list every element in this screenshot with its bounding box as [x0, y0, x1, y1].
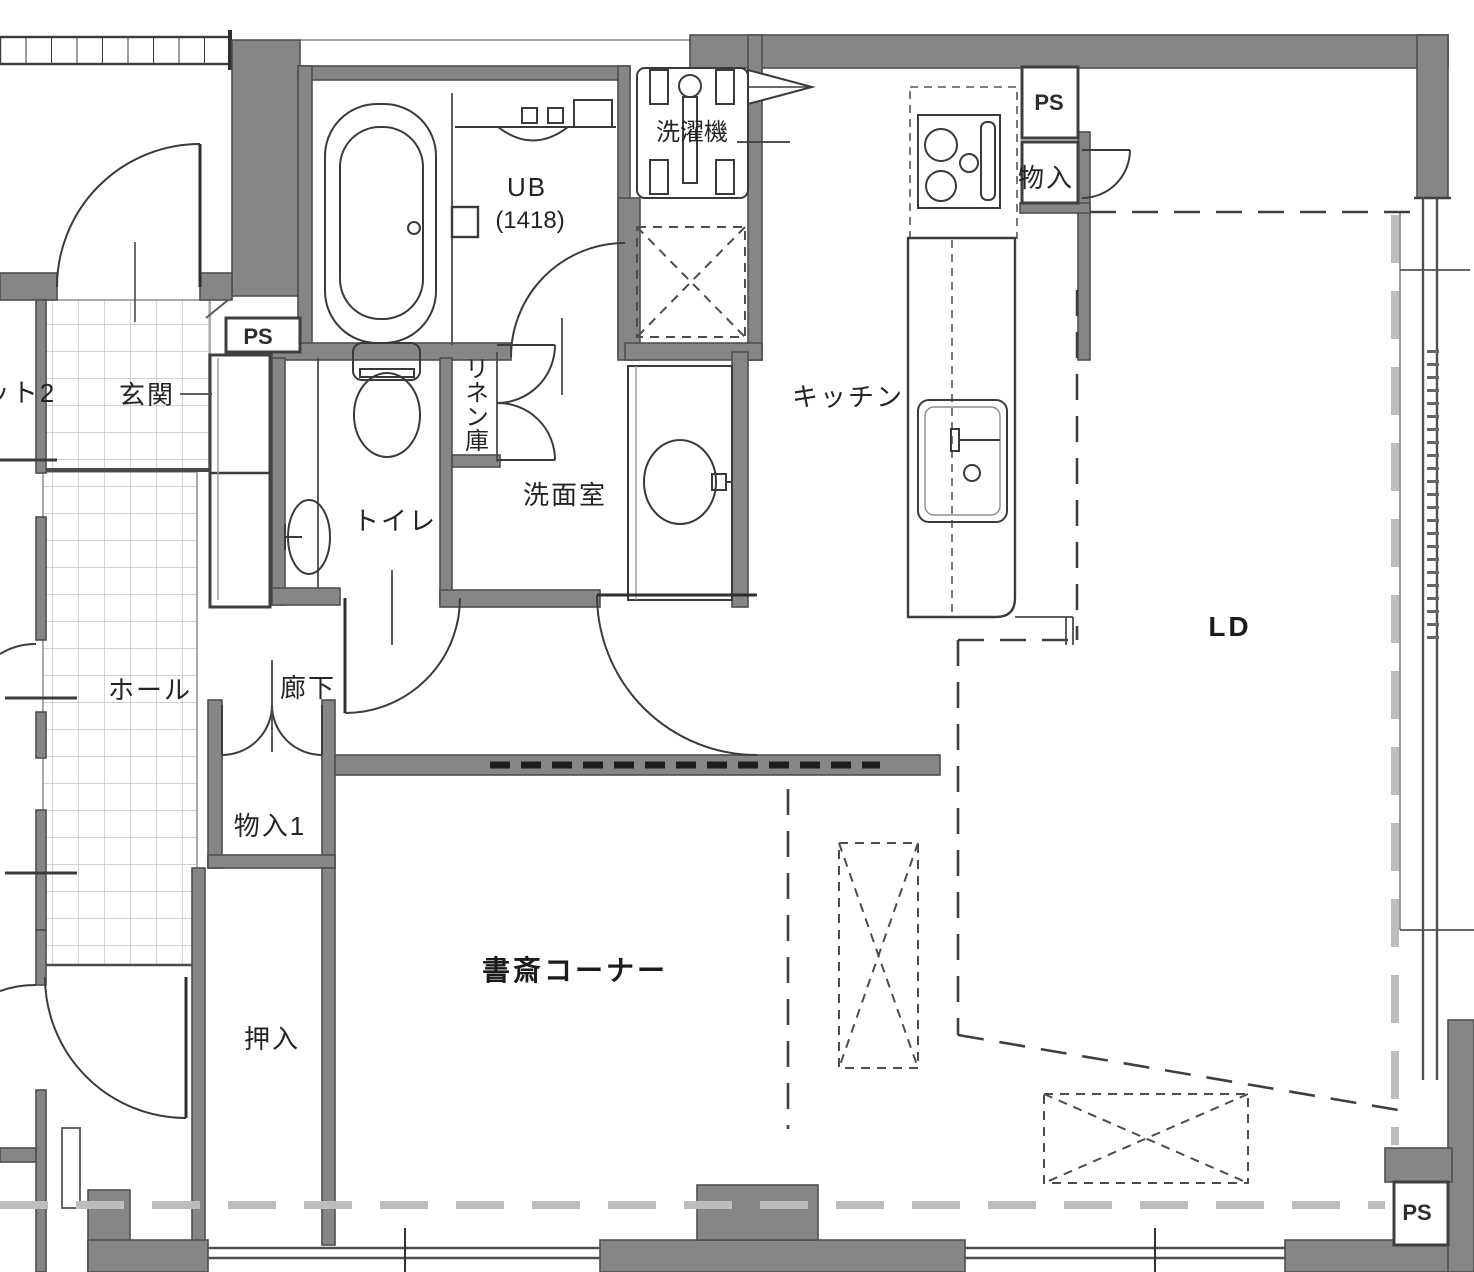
label-kitchen: キッチン: [792, 382, 904, 412]
ceiling-x-box-ld-tall: [839, 843, 918, 1068]
label-toilet: トイレ: [353, 506, 437, 536]
toilet-hand-basin: [285, 500, 330, 574]
bedroom-door-bottom-left: [45, 977, 186, 1118]
label-corridor: 廊下: [280, 673, 336, 703]
label-study: 書斎コーナー: [482, 954, 668, 986]
label-storage-kitchen: 物入: [1018, 163, 1074, 193]
washroom-door: [597, 595, 757, 755]
label-closet2-cut: ット2: [0, 378, 56, 408]
label-storage1: 物入1: [234, 811, 306, 841]
label-oshiire: 押入: [244, 1024, 300, 1054]
label-genkan: 玄関: [119, 380, 175, 410]
floor-plan-svg: 玄関 ット2 ホール 廊下 トイレ 洗面室 リネン庫 UB (1418) 洗濯機…: [0, 0, 1474, 1272]
floor-plan: 玄関 ット2 ホール 廊下 トイレ 洗面室 リネン庫 UB (1418) 洗濯機…: [0, 0, 1474, 1272]
kitchen-counter-sink: [908, 238, 1073, 645]
label-ps-left: PS: [243, 324, 272, 349]
ceiling-x-box-ld-wide: [1044, 1094, 1248, 1183]
label-laundry: 洗濯機: [656, 119, 728, 146]
exterior-gallery-strip: [0, 30, 690, 70]
ceiling-x-box-laundry: [637, 227, 745, 337]
linen-double-doors: [497, 345, 555, 462]
toilet-door: [345, 598, 460, 713]
entry-cabinet: [210, 355, 270, 607]
label-washroom: 洗面室: [523, 480, 607, 510]
label-living-dining: LD: [1208, 611, 1251, 642]
kitchen-stove: [910, 87, 1017, 238]
label-linen: リネン庫: [461, 356, 489, 452]
bathtub: [325, 104, 436, 343]
label-unit-bath: UB: [507, 172, 547, 202]
label-ps-kitchen: PS: [1034, 90, 1063, 115]
label-unit-bath-size: (1418): [495, 207, 564, 234]
vanity-basin: [628, 366, 732, 600]
entrance-door: [57, 144, 200, 322]
label-hall: ホール: [108, 675, 192, 705]
unit-bath-door: [511, 243, 625, 395]
room-labels: 玄関 ット2 ホール 廊下 トイレ 洗面室 リネン庫 UB (1418) 洗濯機…: [0, 90, 1432, 1225]
range-hood-arrow-icon: [748, 70, 812, 104]
label-ps-bottom-right: PS: [1402, 1200, 1431, 1225]
